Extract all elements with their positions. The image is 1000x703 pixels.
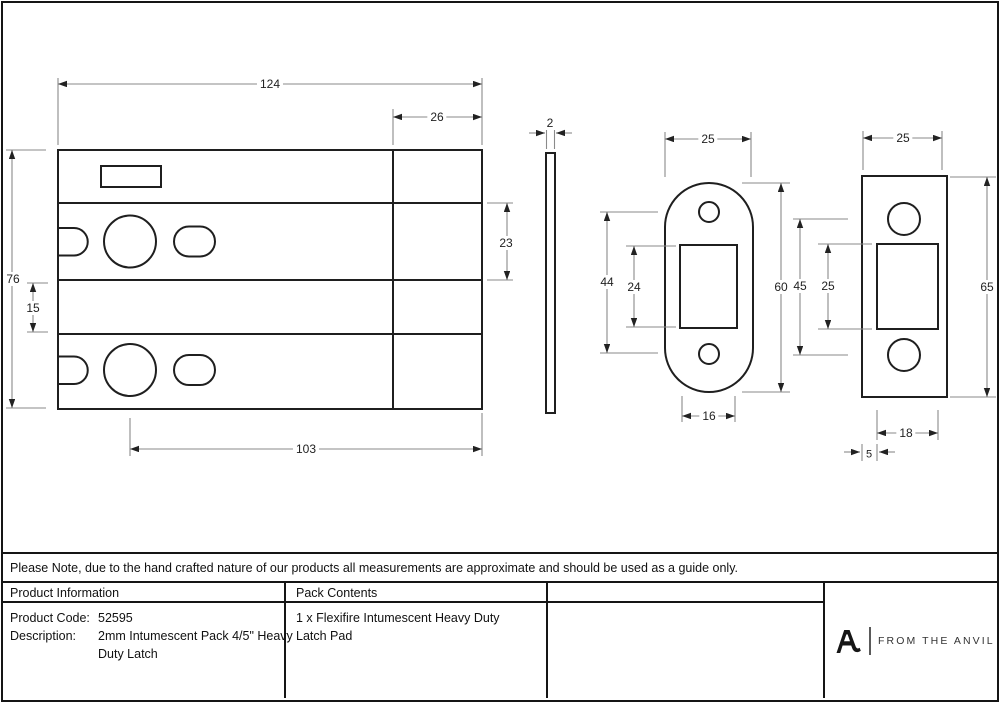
table-top-line xyxy=(2,552,998,554)
dim-square-keep-centres-label: 45 xyxy=(790,279,809,293)
dim-radius-keep-width-label: 25 xyxy=(698,132,717,146)
bolt-cutout-top xyxy=(58,228,88,256)
dim-faceplate-depth-label: 26 xyxy=(427,110,446,124)
dim-radius-aperture-width-label: 16 xyxy=(699,409,718,423)
latch-front-view xyxy=(58,150,482,409)
square-keep-outline xyxy=(862,176,947,397)
technical-drawing xyxy=(0,0,1000,553)
pack-contents-header: Pack Contents xyxy=(296,584,377,602)
dim-square-keep-width-label: 25 xyxy=(893,131,912,145)
radius-keep-outline xyxy=(665,183,753,392)
radius-keep-hole-top xyxy=(699,202,719,222)
anvil-a-icon xyxy=(836,629,863,654)
brand-name: FROM THE ANVIL xyxy=(878,635,995,647)
dim-upper-band-label: 23 xyxy=(496,236,515,250)
dim-radius-keep-centres-label: 44 xyxy=(597,275,616,289)
radius-keep-aperture xyxy=(680,245,737,328)
dim-plate-height-label: 76 xyxy=(3,272,22,286)
spindle-hole-top xyxy=(104,216,156,268)
spindle-hole-bottom xyxy=(104,344,156,396)
logo-divider xyxy=(869,627,871,655)
bolt-cutout-bottom xyxy=(58,357,88,385)
dim-square-keep-height-label: 65 xyxy=(977,280,996,294)
dim-plate-width-label: 124 xyxy=(257,77,283,91)
dim-backset-label: 103 xyxy=(293,442,319,456)
fixing-slot-top xyxy=(174,227,215,257)
dim-square-aperture-inset-label: 5 xyxy=(865,450,873,461)
dimension-lines xyxy=(6,78,996,461)
square-keep-hole-top xyxy=(888,203,920,235)
latch-side-view xyxy=(546,153,555,413)
measurement-note: Please Note, due to the hand crafted nat… xyxy=(10,559,738,577)
square-keep-aperture xyxy=(877,244,938,329)
product-information-header: Product Information xyxy=(10,584,119,602)
table-header-top-line xyxy=(2,581,998,583)
dim-thickness-label: 2 xyxy=(544,116,557,130)
dim-square-aperture-height-label: 25 xyxy=(818,279,837,293)
product-code-value: 52595 xyxy=(98,609,133,627)
radius-keep-hole-bottom xyxy=(699,344,719,364)
square-keep-view xyxy=(862,176,947,397)
table-header-bottom-line xyxy=(2,601,825,603)
dim-thickness-lines xyxy=(529,127,572,149)
pack-contents-value: 1 x Flexifire Intumescent Heavy Duty Lat… xyxy=(296,609,524,645)
label-recess xyxy=(101,166,161,187)
square-keep-hole-bottom xyxy=(888,339,920,371)
side-profile-outline xyxy=(546,153,555,413)
table-divider-2 xyxy=(546,581,548,698)
dim-radius-aperture-height-label: 24 xyxy=(624,280,643,294)
radius-keep-view xyxy=(665,183,753,392)
product-spec-sheet: 124 26 76 15 23 103 2 25 44 24 60 16 25 … xyxy=(0,0,1000,703)
table-divider-3 xyxy=(823,581,825,698)
dim-radius-keep-height-label: 60 xyxy=(771,280,790,294)
description-value: 2mm Intumescent Pack 4/5" Heavy Duty Lat… xyxy=(98,627,308,663)
description-label: Description: xyxy=(10,627,76,645)
dim-square-aperture-width-label: 18 xyxy=(896,426,915,440)
fixing-slot-bottom xyxy=(174,355,215,385)
product-code-label: Product Code: xyxy=(10,609,90,627)
dim-lower-band-label: 15 xyxy=(23,301,42,315)
